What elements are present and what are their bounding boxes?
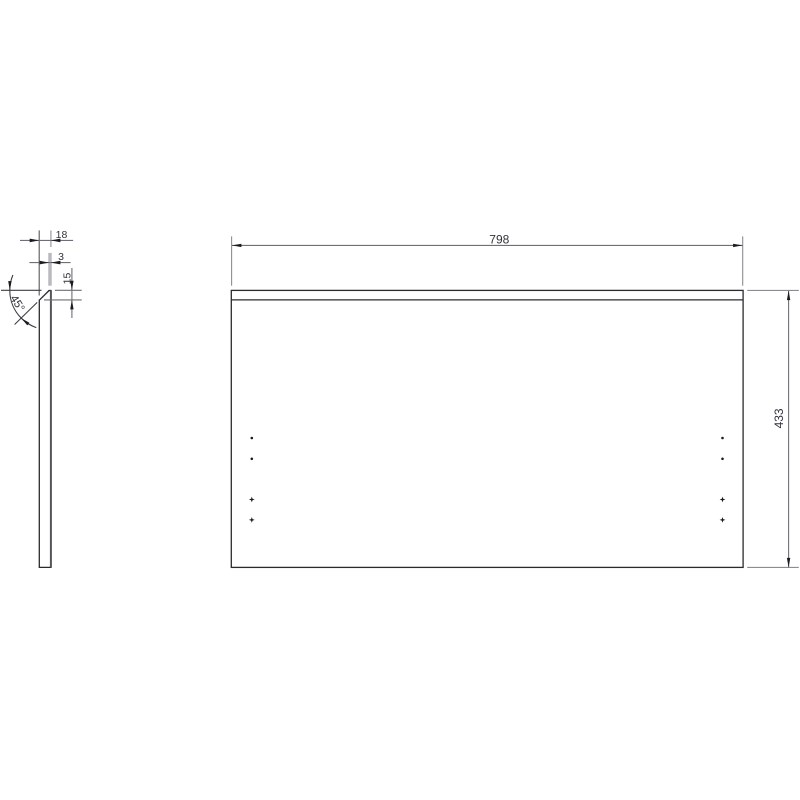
svg-text:3: 3 (58, 251, 64, 263)
svg-text:433: 433 (772, 408, 786, 428)
svg-text:15: 15 (62, 273, 74, 285)
svg-text:18: 18 (56, 229, 68, 241)
svg-text:798: 798 (489, 233, 509, 247)
